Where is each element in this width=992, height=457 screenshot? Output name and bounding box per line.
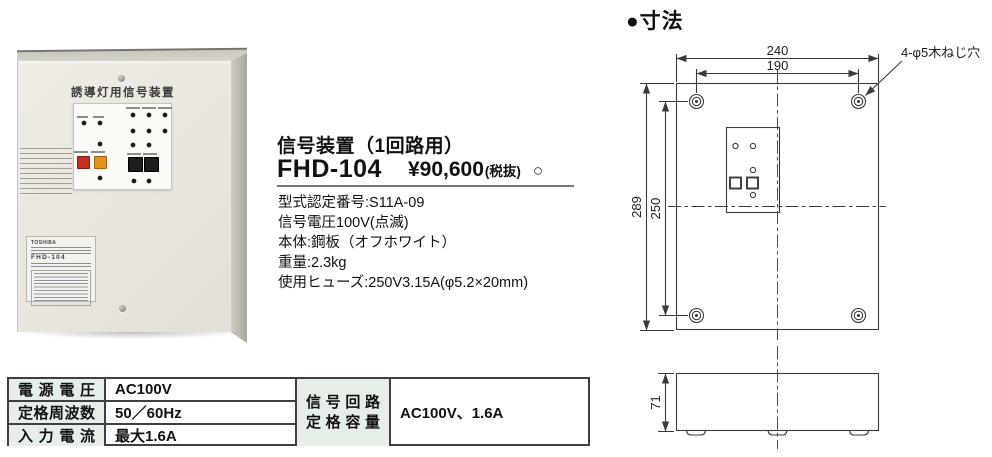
orange-button [94, 156, 107, 169]
table-value-power-voltage: AC100V [106, 379, 297, 402]
hole-note-label: 4-φ5木ねじ穴 [901, 45, 980, 60]
terminal-box-outline [727, 128, 780, 213]
screw-hole [690, 95, 704, 109]
table-header-input-current: 入力電流 [9, 425, 106, 446]
red-button [77, 156, 90, 169]
black-button-1 [128, 157, 143, 172]
extension-lines [640, 54, 879, 432]
screw-bottom [119, 305, 126, 312]
terminal-details [730, 143, 758, 197]
table-value-input-current: 最大1.6A [106, 425, 297, 446]
dim-label-240: 240 [767, 43, 789, 58]
black-button-2 [144, 157, 159, 172]
screw-hole [852, 309, 866, 323]
price-tax-note: (税抜) [485, 160, 521, 180]
spec-table: 電源電圧 AC100V 信号回路 定格容量 AC100V、1.6A 定格周波数 … [7, 377, 590, 446]
dimension-drawing: 240 190 289 250 71 4-φ5木ねじ穴 [620, 0, 992, 457]
spec-line: 本体:鋼板（オフホワイト） [278, 233, 528, 253]
panel-label-mark [127, 153, 141, 155]
rating-label-brand: TOSHIBA [31, 240, 91, 246]
product-category-title: 信号装置（1回路用） [277, 131, 464, 158]
panel-label-mark [142, 107, 156, 109]
price-circle-marker: ○ [533, 161, 543, 181]
rating-label-model: FHD-104 [31, 254, 91, 262]
price-amount: ¥90,600 [408, 158, 484, 182]
dim-label-289: 289 [629, 196, 644, 218]
spec-line: 型式認定番号:S11A-09 [278, 193, 528, 213]
product-photo: 誘導灯用信号装置 TOSHIBA FHD-104 [14, 44, 254, 346]
caution-text-block [20, 148, 72, 194]
spec-line: 使用ヒューズ:250V3.15A(φ5.2×20mm) [278, 273, 528, 293]
table-header-rated-frequency: 定格周波数 [9, 402, 106, 425]
spec-line: 重量:2.3kg [278, 253, 528, 273]
panel-label-mark [93, 116, 104, 118]
rating-label-lines [31, 247, 91, 254]
spec-list: 型式認定番号:S11A-09 信号電圧100V(点滅) 本体:鋼板（オフホワイト… [278, 193, 528, 293]
screw-hole [852, 95, 866, 109]
screw-top [118, 75, 125, 82]
screw-hole [690, 309, 704, 323]
table-value-rated-frequency: 50／60Hz [106, 402, 297, 425]
indicator-panel [73, 103, 172, 190]
rating-label-lines [31, 263, 91, 268]
rating-label-subbox [31, 270, 91, 306]
panel-label-mark [126, 107, 140, 109]
table-header-signal-circuit-rating: 信号回路 定格容量 [297, 379, 391, 446]
panel-label-mark [143, 153, 157, 155]
product-model: FHD-104 [277, 155, 382, 184]
spec-line: 信号電圧100V(点滅) [278, 213, 528, 233]
box-panel-title: 誘導灯用信号装置 [58, 84, 188, 100]
table-value-signal-circuit-rating: AC100V、1.6A [391, 379, 588, 446]
product-price: ¥90,600 (税抜) ○ [408, 158, 543, 182]
divider-line [277, 185, 574, 187]
panel-label-mark [158, 107, 172, 109]
table-header-power-voltage: 電源電圧 [9, 379, 106, 402]
panel-label-mark [74, 151, 88, 153]
box-shadow [18, 332, 246, 339]
box-side-face [229, 53, 247, 343]
rating-label: TOSHIBA FHD-104 [26, 236, 96, 302]
hole-note-leader [866, 61, 903, 96]
dim-label-250: 250 [648, 198, 663, 220]
panel-label-mark [91, 151, 105, 153]
panel-label-mark [77, 116, 88, 118]
dim-label-190: 190 [767, 58, 789, 73]
dim-label-71: 71 [648, 395, 663, 409]
